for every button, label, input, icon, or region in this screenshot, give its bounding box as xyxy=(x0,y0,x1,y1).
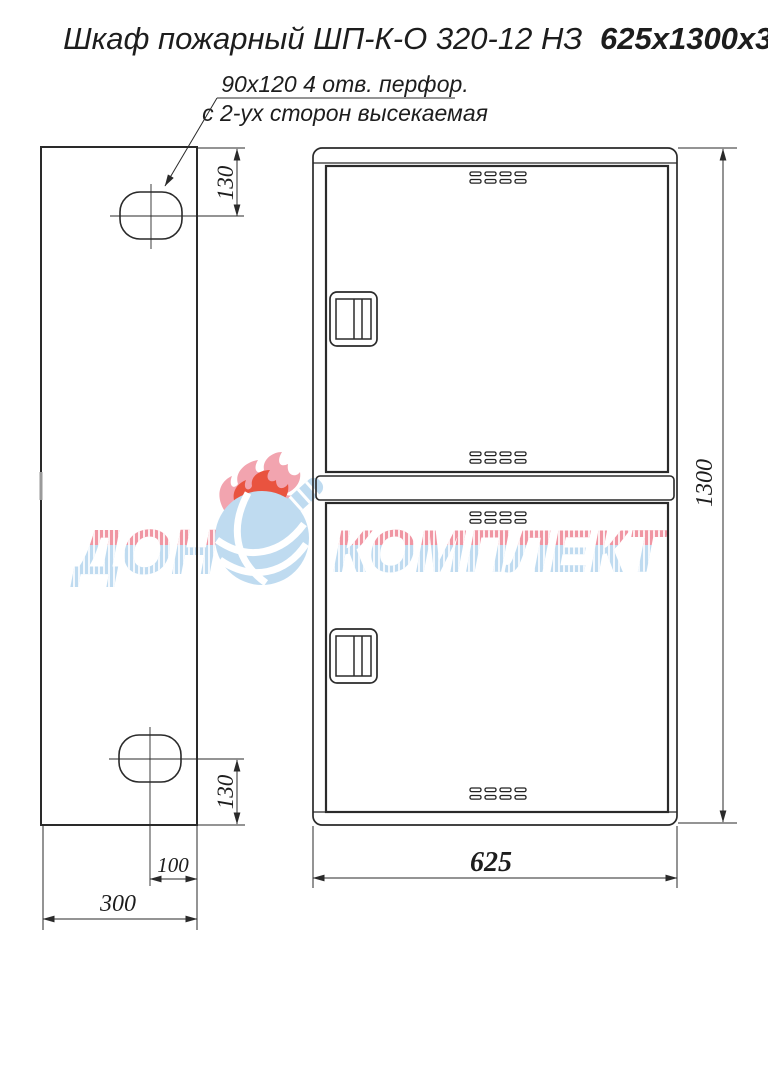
vent-slots-door-top-lower xyxy=(470,452,526,463)
middle-divider xyxy=(316,476,674,500)
cabinet-outline xyxy=(313,148,677,825)
side-view-outline xyxy=(41,147,197,825)
dim-value-100: 100 xyxy=(157,853,189,877)
note-line1: 90x120 4 отв. перфор. xyxy=(221,71,468,97)
dim-value-1300: 1300 xyxy=(692,459,718,507)
title-size: 625x1300x300 xyxy=(600,21,768,56)
dim-value-130-bottom: 130 xyxy=(213,774,238,809)
title-model: Шкаф пожарный ШП-К-О 320-12 НЗ xyxy=(63,21,582,56)
watermark-text-right-hatch: КОМПЛЕКТ xyxy=(332,518,668,585)
dim-value-300: 300 xyxy=(99,891,136,917)
dim-value-130-top: 130 xyxy=(213,165,238,200)
handle-door-top xyxy=(330,292,377,346)
handle-door-bottom xyxy=(330,629,377,683)
note-line2: с 2-ух сторон высекаемая xyxy=(202,100,488,126)
drawing-canvas: ДОН ДОН КОМПЛЕКТ КОМПЛЕКТ xyxy=(0,0,768,1087)
drawing-page: ДОН ДОН КОМПЛЕКТ КОМПЛЕКТ xyxy=(0,0,768,1087)
brand-logo xyxy=(215,452,326,585)
vent-slots-door-top-upper xyxy=(470,172,526,183)
front-view xyxy=(313,148,677,825)
drawing-title: Шкаф пожарный ШП-К-О 320-12 НЗ 625x1300x… xyxy=(63,21,768,56)
dim-value-625: 625 xyxy=(470,847,512,878)
vent-slots-door-bottom-lower xyxy=(470,788,526,799)
side-divider-mark xyxy=(40,472,43,500)
